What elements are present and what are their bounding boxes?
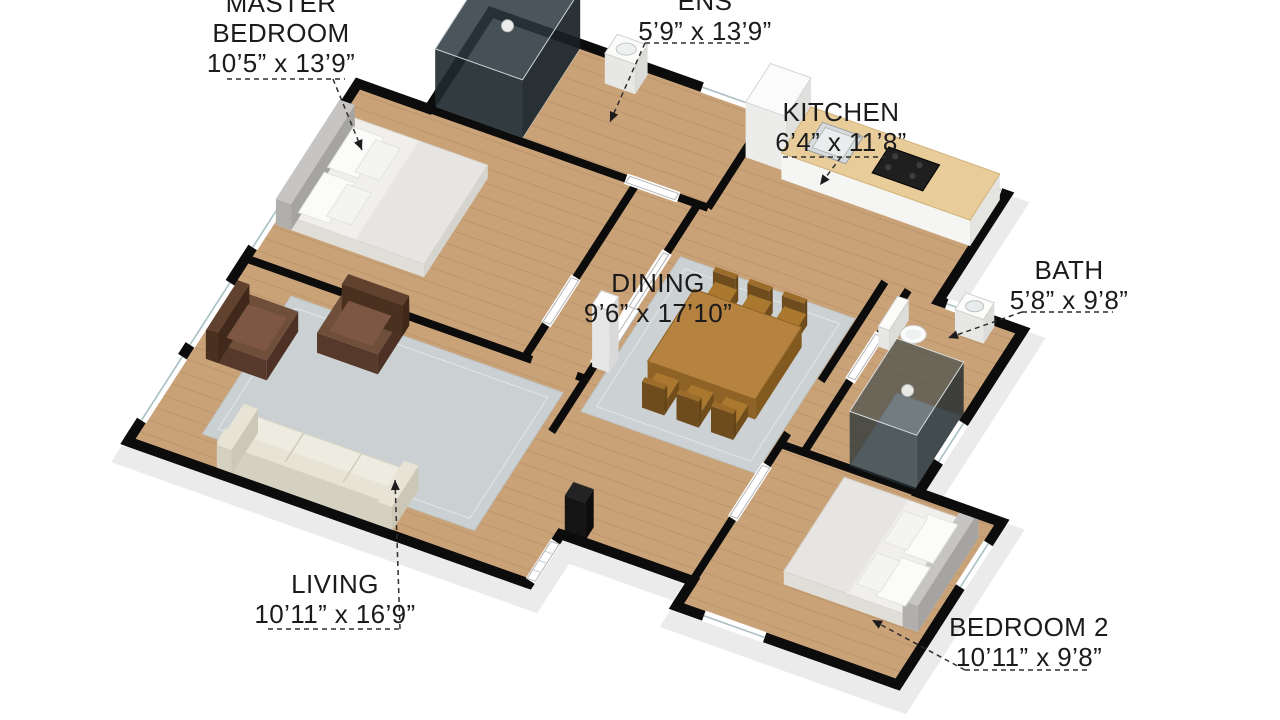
master-bedroom-leader-line bbox=[333, 79, 362, 150]
arrow-icon bbox=[820, 174, 830, 185]
arrow-icon bbox=[948, 330, 959, 338]
living-leader-line bbox=[395, 480, 400, 629]
ens-leader-line bbox=[610, 43, 645, 122]
bath-leader-line bbox=[948, 312, 1022, 338]
arrow-icon bbox=[872, 620, 883, 629]
floor-plan-screenshot: MASTERBEDROOM10’5” x 13’9”ENS5’9” x 13’9… bbox=[0, 0, 1280, 720]
label-leader-lines bbox=[0, 0, 1280, 720]
bedroom-2-leader-line bbox=[872, 620, 965, 670]
arrow-icon bbox=[391, 480, 400, 490]
